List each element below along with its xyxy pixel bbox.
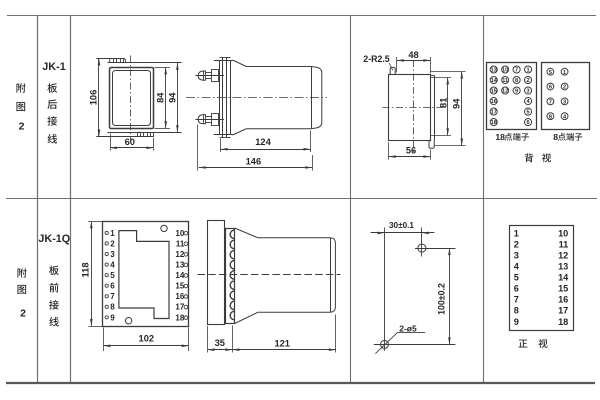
svg-text:10: 10 <box>175 229 184 238</box>
svg-text:1: 1 <box>110 229 115 238</box>
svg-text:3: 3 <box>563 99 566 105</box>
svg-text:118: 118 <box>80 263 90 278</box>
svg-text:94: 94 <box>167 92 177 103</box>
svg-text:17: 17 <box>558 306 568 316</box>
svg-text:2-R2.5: 2-R2.5 <box>363 54 390 64</box>
svg-text:8: 8 <box>549 114 552 120</box>
svg-text:146: 146 <box>246 157 262 167</box>
svg-text:8: 8 <box>553 132 558 142</box>
svg-text:11: 11 <box>502 78 508 84</box>
svg-text:4: 4 <box>514 261 520 271</box>
svg-text:124: 124 <box>255 137 271 147</box>
svg-text:1: 1 <box>514 228 519 238</box>
svg-text:94: 94 <box>451 98 461 109</box>
svg-text:15: 15 <box>491 89 497 95</box>
svg-text:3: 3 <box>526 89 529 95</box>
svg-text:12: 12 <box>558 250 568 260</box>
svg-text:3: 3 <box>514 250 519 260</box>
svg-text:56: 56 <box>406 145 416 155</box>
svg-text:8: 8 <box>514 306 519 316</box>
svg-text:81: 81 <box>439 98 449 108</box>
svg-text:6: 6 <box>549 85 552 91</box>
svg-text:15: 15 <box>558 284 568 294</box>
svg-text:6: 6 <box>526 120 529 126</box>
svg-text:12: 12 <box>175 250 184 259</box>
svg-text:102: 102 <box>139 333 155 343</box>
svg-text:13: 13 <box>175 260 184 269</box>
svg-text:2: 2 <box>20 308 26 320</box>
svg-text:7: 7 <box>514 295 519 305</box>
svg-text:35: 35 <box>215 338 225 348</box>
svg-text:16: 16 <box>175 292 184 301</box>
svg-text:9: 9 <box>515 89 518 95</box>
svg-text:14: 14 <box>175 271 184 280</box>
svg-text:8: 8 <box>515 78 518 84</box>
svg-text:2: 2 <box>19 121 25 133</box>
svg-text:16: 16 <box>491 99 497 105</box>
svg-text:10: 10 <box>558 228 568 238</box>
svg-text:48: 48 <box>408 50 418 60</box>
svg-text:14: 14 <box>558 273 569 283</box>
svg-text:16: 16 <box>558 295 568 305</box>
svg-text:100±0.2: 100±0.2 <box>437 283 447 315</box>
svg-text:18: 18 <box>495 132 505 142</box>
svg-text:7: 7 <box>515 68 518 74</box>
svg-text:5: 5 <box>526 110 529 116</box>
svg-text:9: 9 <box>514 317 519 327</box>
svg-text:4: 4 <box>110 260 115 269</box>
svg-text:14: 14 <box>491 78 498 84</box>
svg-text:18: 18 <box>491 120 497 126</box>
svg-text:11: 11 <box>176 239 185 248</box>
svg-text:6: 6 <box>514 284 519 294</box>
svg-text:3: 3 <box>110 250 115 259</box>
svg-text:5: 5 <box>110 271 115 280</box>
svg-text:JK-1: JK-1 <box>42 61 65 73</box>
svg-text:8: 8 <box>110 303 115 312</box>
svg-text:17: 17 <box>491 110 497 116</box>
svg-text:JK-1Q: JK-1Q <box>38 233 70 245</box>
svg-text:2: 2 <box>526 78 529 84</box>
svg-text:60: 60 <box>125 137 135 147</box>
svg-text:11: 11 <box>559 239 569 249</box>
svg-text:18: 18 <box>558 317 568 327</box>
svg-text:2: 2 <box>563 85 566 91</box>
svg-text:13: 13 <box>491 68 497 74</box>
svg-text:1: 1 <box>526 68 529 74</box>
svg-text:2-ø5: 2-ø5 <box>399 324 417 334</box>
svg-text:10: 10 <box>502 68 508 74</box>
svg-text:5: 5 <box>514 273 519 283</box>
svg-text:5: 5 <box>549 70 552 76</box>
svg-text:9: 9 <box>110 313 115 322</box>
svg-text:7: 7 <box>549 99 552 105</box>
svg-text:18: 18 <box>175 313 184 322</box>
svg-text:6: 6 <box>110 282 115 291</box>
svg-text:7: 7 <box>110 292 115 301</box>
svg-text:13: 13 <box>558 261 568 271</box>
svg-text:30±0.1: 30±0.1 <box>389 221 414 230</box>
svg-text:17: 17 <box>175 303 184 312</box>
svg-text:2: 2 <box>514 239 519 249</box>
svg-text:2: 2 <box>110 239 115 248</box>
svg-text:12: 12 <box>502 89 508 95</box>
svg-text:84: 84 <box>155 92 165 103</box>
svg-text:106: 106 <box>88 90 98 106</box>
svg-text:1: 1 <box>563 70 566 76</box>
svg-text:15: 15 <box>175 282 184 291</box>
svg-text:121: 121 <box>274 339 290 349</box>
